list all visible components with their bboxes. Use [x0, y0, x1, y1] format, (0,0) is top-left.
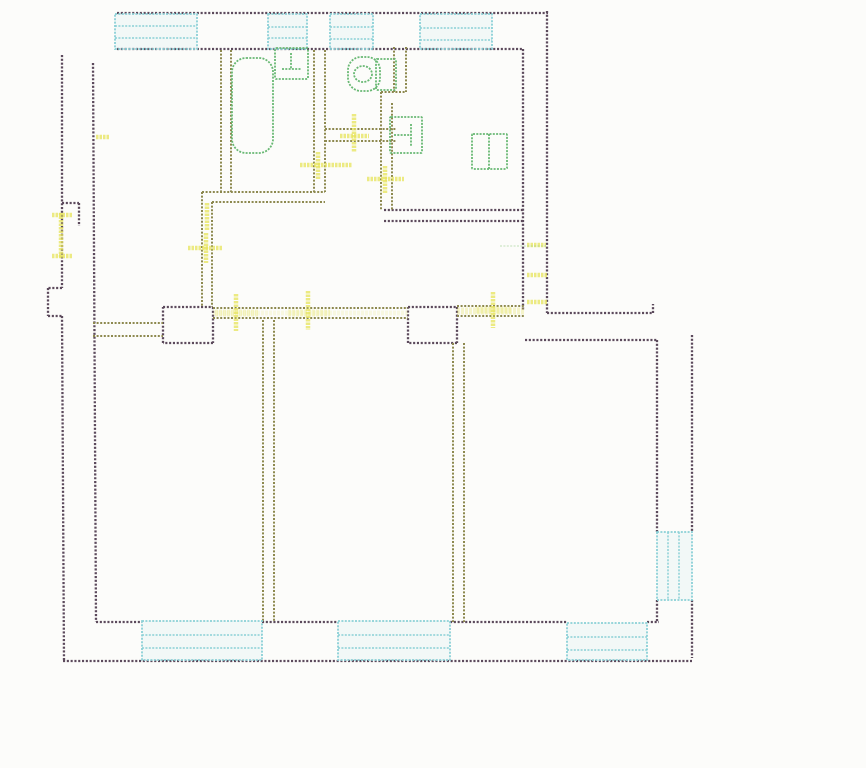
window-top-3 [330, 14, 373, 49]
window-bottom-2 [338, 621, 450, 660]
window-bottom-3 [567, 623, 647, 660]
toilet-seat [354, 66, 372, 82]
window-top-4 [420, 14, 492, 49]
window-right [657, 532, 692, 600]
window-top-1 [115, 14, 197, 49]
floor-plan-scan [0, 0, 866, 768]
outer-wall [93, 63, 96, 622]
window-top-2 [268, 14, 307, 49]
bathtub [232, 58, 273, 153]
floor-plan-svg [0, 0, 866, 768]
window-bottom-1 [142, 621, 262, 660]
outer-wall [62, 316, 64, 661]
